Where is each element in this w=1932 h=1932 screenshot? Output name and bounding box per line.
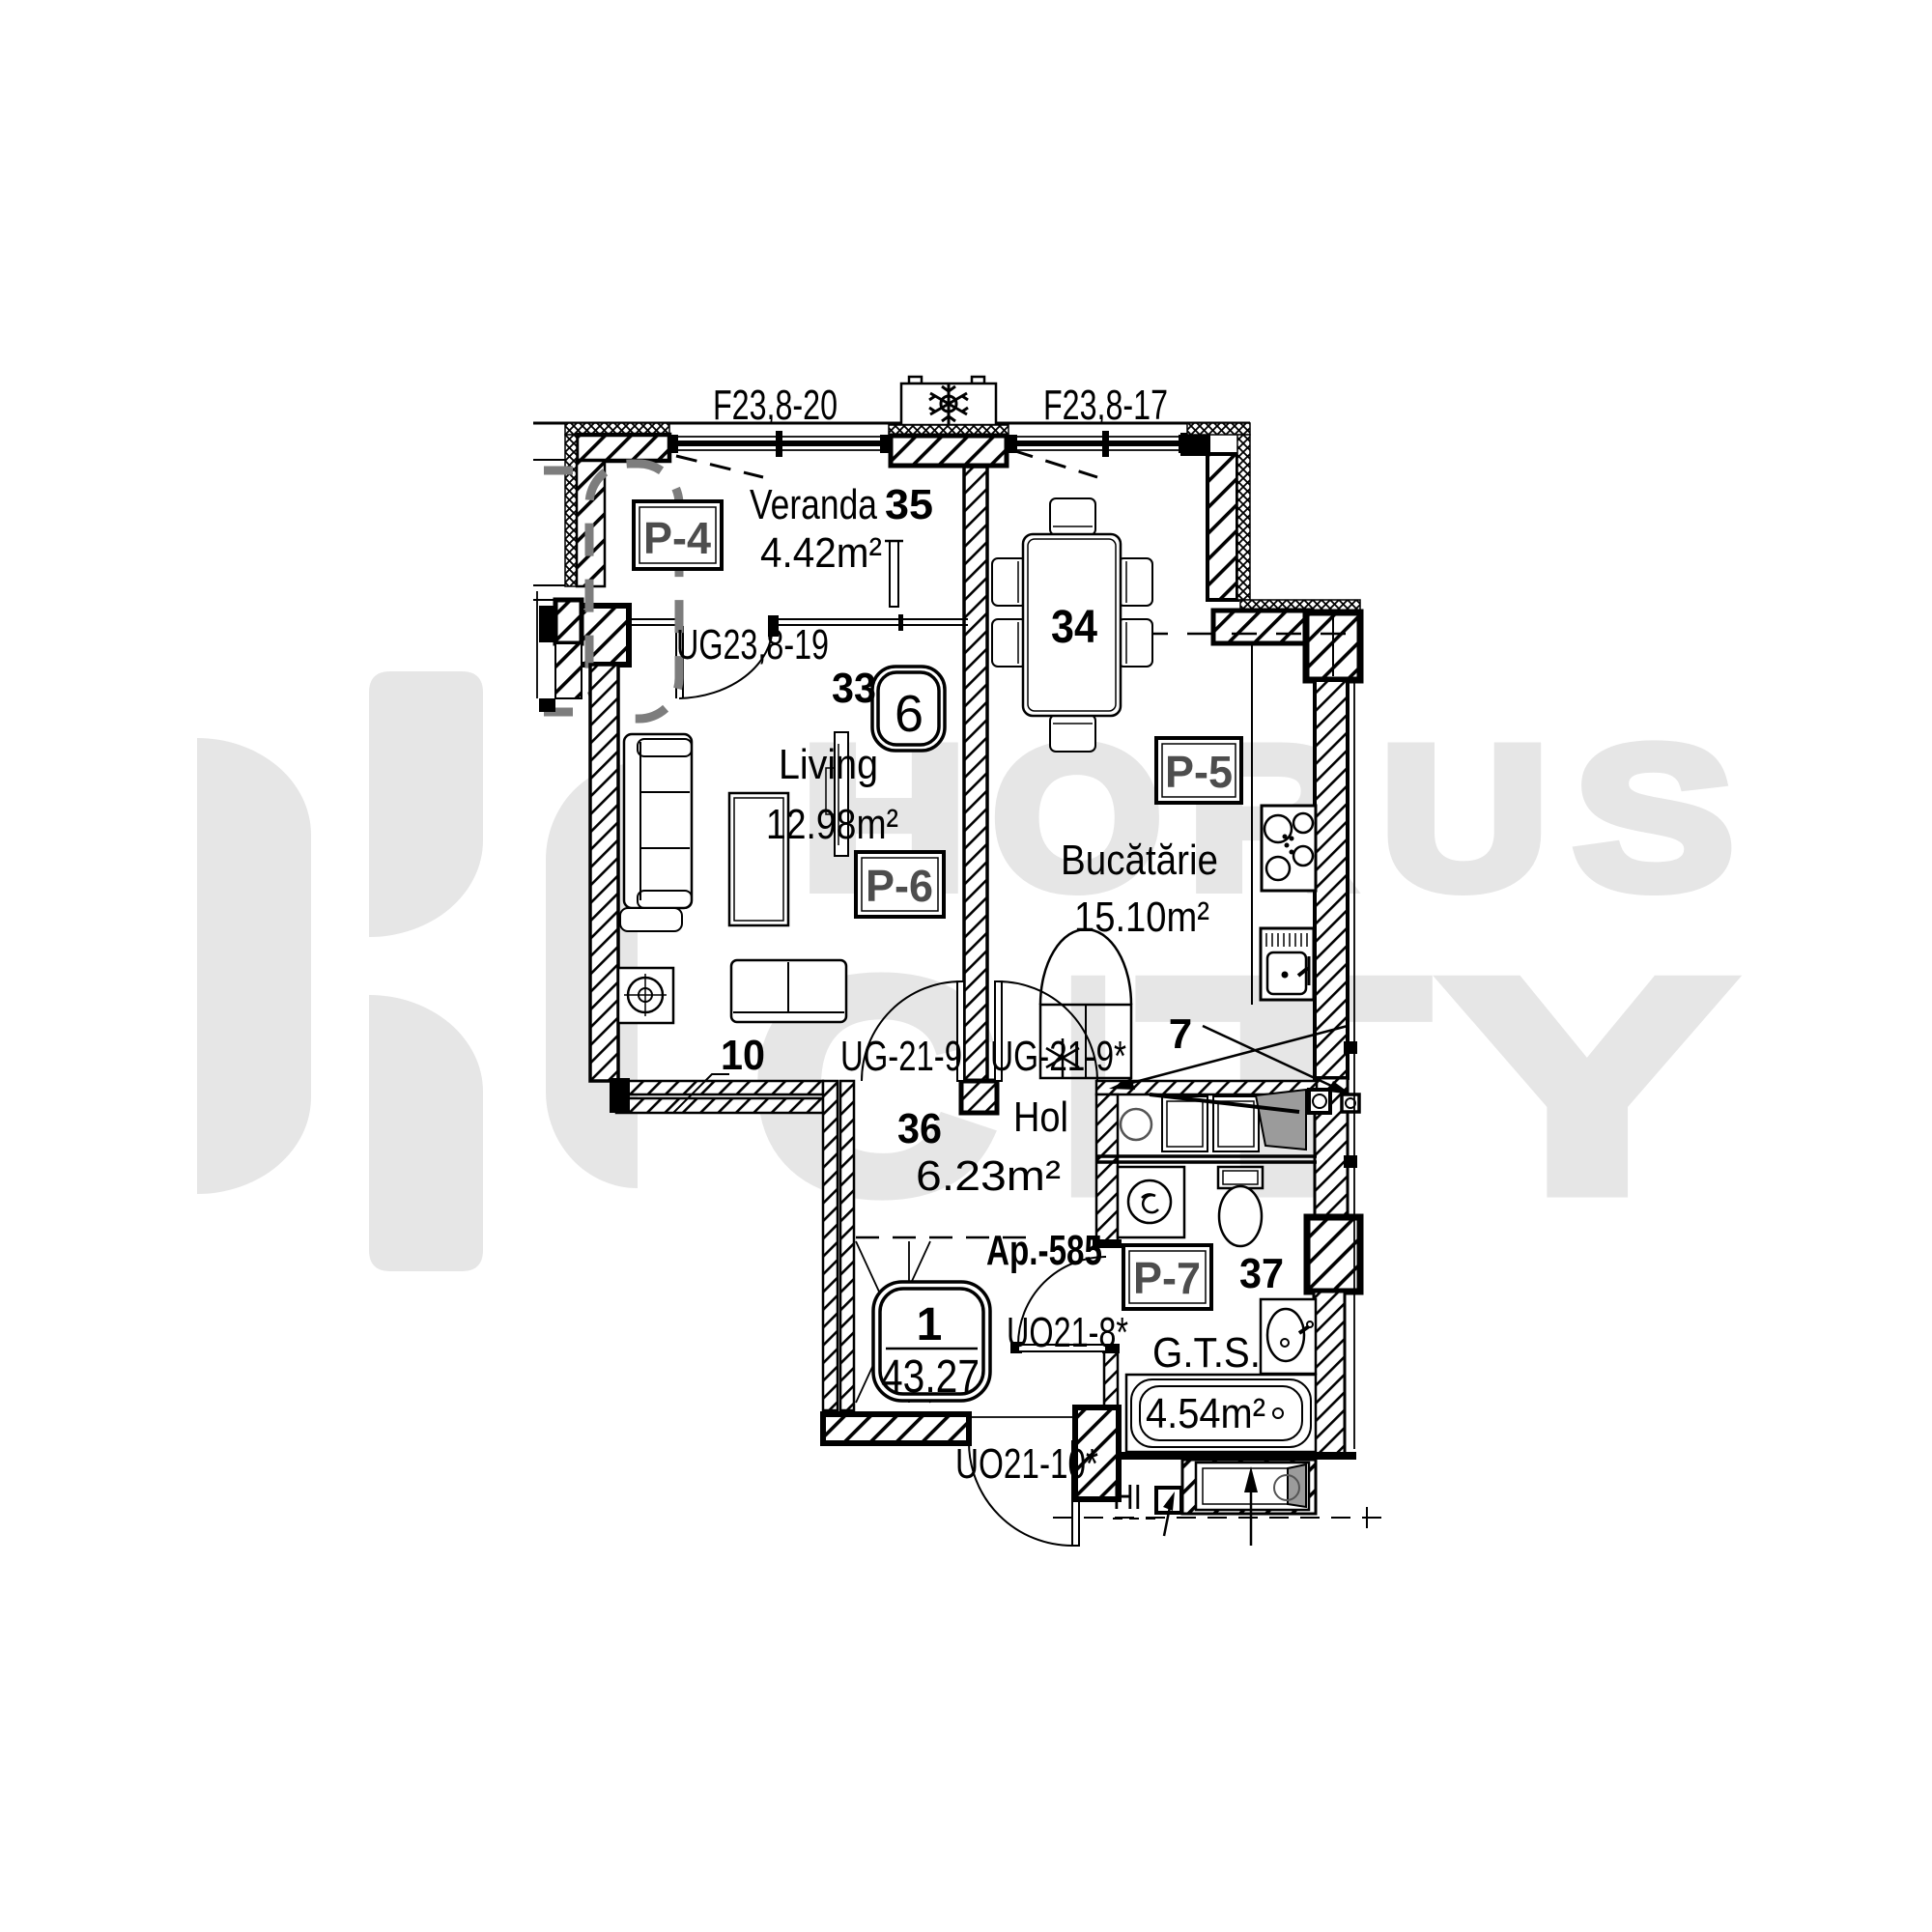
svg-text:P-7: P-7 <box>1133 1253 1201 1303</box>
svg-text:15.10m²: 15.10m² <box>1074 894 1209 941</box>
svg-text:10: 10 <box>721 1032 765 1079</box>
svg-text:UO21-10*: UO21-10* <box>955 1440 1098 1488</box>
svg-text:Y: Y <box>1441 916 1733 1256</box>
svg-text:Bucătărie: Bucătărie <box>1061 837 1218 884</box>
svg-text:12.98m²: 12.98m² <box>766 801 898 848</box>
svg-text:S: S <box>1574 704 1734 931</box>
svg-text:P-5: P-5 <box>1165 747 1233 797</box>
svg-text:Living: Living <box>779 741 878 788</box>
svg-text:P-4: P-4 <box>643 513 711 563</box>
svg-text:33: 33 <box>832 665 876 712</box>
svg-text:Veranda: Veranda <box>750 481 877 528</box>
svg-text:UG-21-9*: UG-21-9* <box>990 1033 1126 1080</box>
svg-text:4.54m²: 4.54m² <box>1146 1390 1265 1437</box>
svg-text:UG23,8-19: UG23,8-19 <box>676 621 829 668</box>
svg-text:F23,8-20: F23,8-20 <box>713 382 838 429</box>
svg-text:UG-21-9: UG-21-9 <box>840 1033 962 1080</box>
svg-text:U: U <box>1380 704 1548 931</box>
svg-text:34: 34 <box>1051 602 1097 653</box>
svg-text:Ap.-585: Ap.-585 <box>986 1227 1102 1274</box>
svg-text:F23,8-17: F23,8-17 <box>1043 382 1168 429</box>
svg-text:37: 37 <box>1239 1250 1284 1297</box>
svg-text:7: 7 <box>1169 1010 1192 1058</box>
svg-text:35: 35 <box>885 481 933 528</box>
svg-text:4.42m²: 4.42m² <box>760 529 882 577</box>
svg-text:43.27: 43.27 <box>881 1351 980 1403</box>
svg-text:P-6: P-6 <box>866 861 933 911</box>
svg-text:36: 36 <box>897 1105 942 1152</box>
svg-text:Hol: Hol <box>1013 1094 1068 1141</box>
svg-text:UO21-8*: UO21-8* <box>1007 1309 1128 1356</box>
svg-text:1: 1 <box>917 1299 943 1350</box>
svg-text:HI: HI <box>1113 1477 1142 1517</box>
svg-text:6.23m²: 6.23m² <box>916 1152 1061 1200</box>
svg-text:6: 6 <box>895 685 923 743</box>
svg-text:G.T.S.: G.T.S. <box>1152 1329 1261 1377</box>
